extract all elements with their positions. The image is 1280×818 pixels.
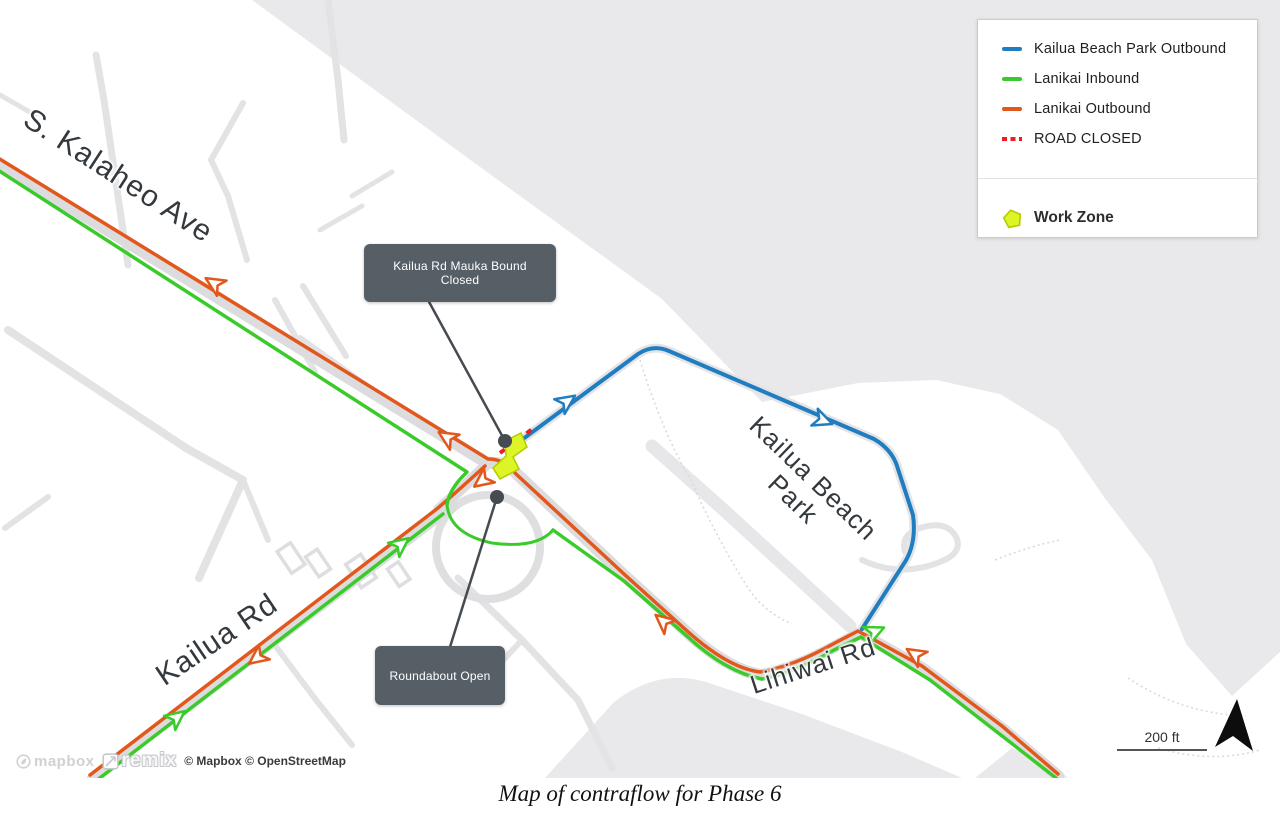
mapbox-logo: mapbox bbox=[16, 753, 95, 770]
legend-item-lanikai-outbound: Lanikai Outbound bbox=[978, 94, 1257, 124]
callout-kailua-rd-mauka-bound-closed: Kailua Rd Mauka Bound Closed bbox=[364, 244, 556, 302]
legend-item-kailua-beach-park-outbound: Kailua Beach Park Outbound bbox=[978, 34, 1257, 64]
scale-line bbox=[1117, 749, 1207, 751]
scale-bar: 200 ft bbox=[1117, 729, 1207, 751]
legend-swatch-lanikai-inbound bbox=[1002, 77, 1022, 82]
figure-caption: Map of contraflow for Phase 6 bbox=[0, 781, 1280, 807]
map-figure: S. Kalaheo AveKailua RdKailua Beach Park… bbox=[0, 0, 1280, 778]
legend-items: Kailua Beach Park OutboundLanikai Inboun… bbox=[978, 34, 1257, 154]
leader-line-roundabout-open bbox=[450, 497, 497, 647]
legend-label-kailua-beach-park-outbound: Kailua Beach Park Outbound bbox=[1034, 41, 1226, 57]
legend-swatch-lanikai-outbound bbox=[1002, 107, 1022, 112]
route-lanikai-outbound-kailua-branch bbox=[90, 466, 485, 775]
legend-swatch-kailua-beach-park-outbound bbox=[1002, 47, 1022, 52]
callout-roundabout-open: Roundabout Open bbox=[375, 646, 505, 705]
map-attribution: mapbox remix © Mapbox © OpenStreetMap bbox=[16, 750, 346, 772]
north-arrow-icon bbox=[1211, 698, 1257, 754]
leader-dot-roundabout-open bbox=[490, 490, 504, 504]
legend: Kailua Beach Park OutboundLanikai Inboun… bbox=[977, 19, 1258, 238]
legend-label-lanikai-inbound: Lanikai Inbound bbox=[1034, 71, 1139, 87]
legend-swatch-road-closed bbox=[1002, 137, 1022, 142]
scale-label: 200 ft bbox=[1117, 729, 1207, 745]
remix-logo-icon bbox=[102, 753, 119, 770]
legend-label-road-closed: ROAD CLOSED bbox=[1034, 131, 1142, 147]
remix-logo-text: remix bbox=[122, 750, 178, 772]
leader-line-kailua-rd-mauka-bound-closed bbox=[428, 300, 505, 441]
work-zone-icon bbox=[1002, 208, 1023, 229]
mapbox-logo-text: mapbox bbox=[34, 753, 95, 770]
legend-divider bbox=[978, 178, 1257, 179]
leader-dot-kailua-rd-mauka-bound-closed bbox=[498, 434, 512, 448]
remix-logo: remix bbox=[102, 750, 178, 772]
legend-item-road-closed: ROAD CLOSED bbox=[978, 124, 1257, 154]
legend-work-zone-label: Work Zone bbox=[1034, 209, 1114, 227]
mapbox-logo-icon bbox=[16, 754, 31, 769]
legend-work-zone-row: Work Zone bbox=[1002, 196, 1114, 240]
legend-label-lanikai-outbound: Lanikai Outbound bbox=[1034, 101, 1151, 117]
attribution-text: © Mapbox © OpenStreetMap bbox=[184, 754, 346, 768]
legend-item-lanikai-inbound: Lanikai Inbound bbox=[978, 64, 1257, 94]
